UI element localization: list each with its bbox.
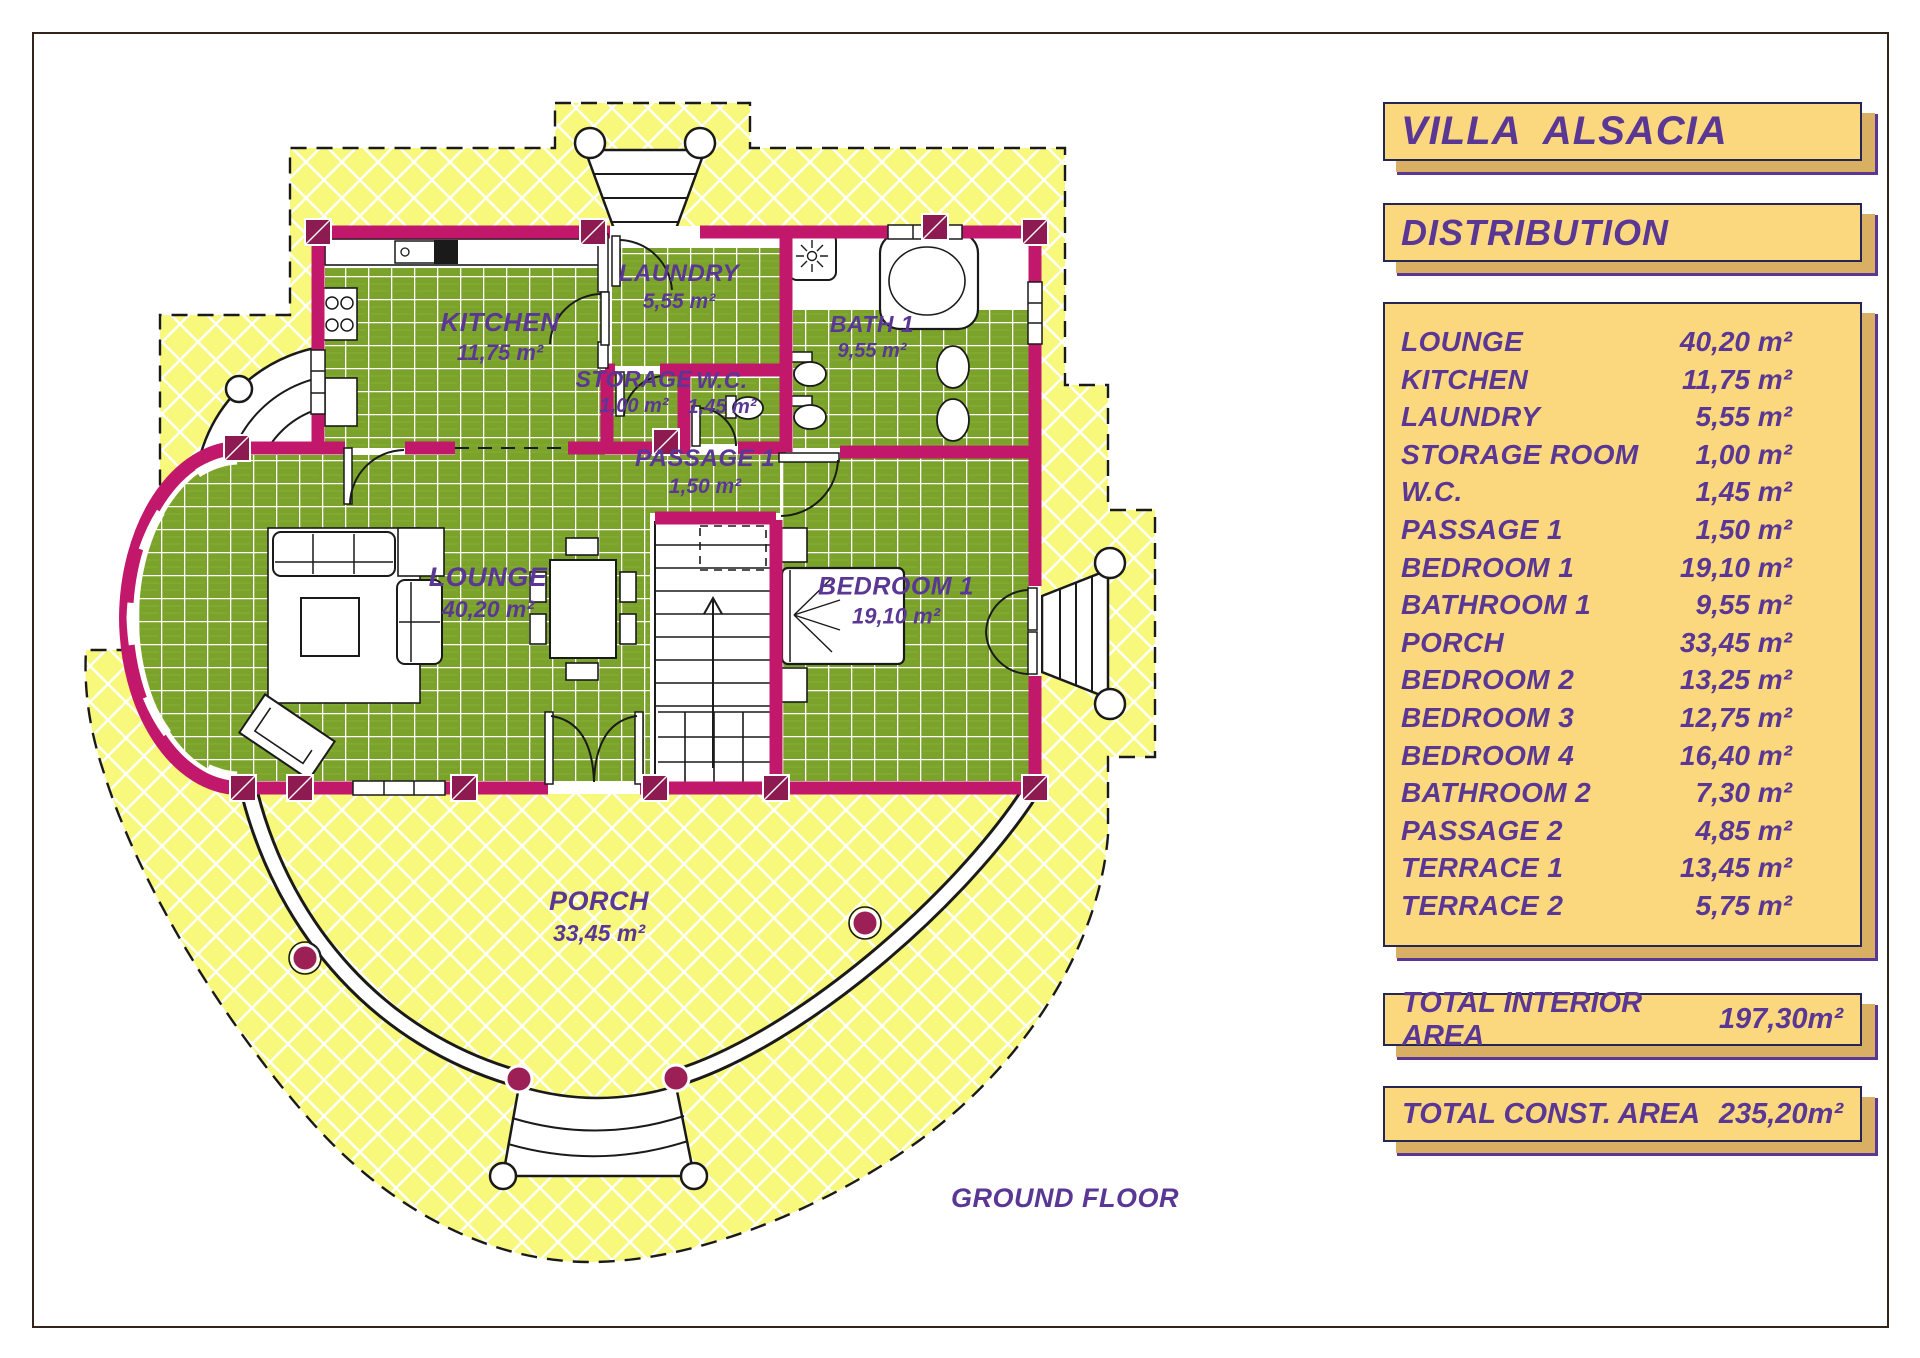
toilet xyxy=(794,405,826,429)
room-area: 5,55 m² xyxy=(1696,398,1793,436)
step-post xyxy=(226,376,252,402)
room-area: 5,75 m² xyxy=(1696,887,1793,925)
plan-room-label: KITCHEN11,75 m² xyxy=(440,306,559,366)
room-name: BEDROOM 2 xyxy=(1401,661,1574,699)
plan-room-name: LOUNGE xyxy=(429,561,548,595)
porch-column xyxy=(663,1065,689,1091)
distribution-row: TERRACE 113,45 m² xyxy=(1385,849,1860,887)
plan-room-area: 5,55 m² xyxy=(619,289,739,315)
chair xyxy=(566,538,598,555)
total-interior-value: 197,30m² xyxy=(1719,1003,1843,1036)
room-name: BATHROOM 2 xyxy=(1401,774,1591,812)
distribution-row: LOUNGE40,20 m² xyxy=(1385,323,1860,361)
step-post xyxy=(1095,548,1125,578)
chair xyxy=(566,663,598,680)
room-area: 19,10 m² xyxy=(1680,549,1792,587)
room-area: 1,50 m² xyxy=(1696,511,1793,549)
step-post xyxy=(575,128,605,158)
plan-room-label: BEDROOM 119,10 m² xyxy=(818,572,974,631)
plan-room-label: PASSAGE 11,50 m² xyxy=(635,444,775,500)
distribution-header-panel: DISTRIBUTION xyxy=(1383,203,1862,262)
sofa-3seat xyxy=(273,532,395,576)
total-interior-panel: TOTAL INTERIOR AREA 197,30m² xyxy=(1383,993,1862,1046)
distribution-row: BEDROOM 119,10 m² xyxy=(1385,549,1860,587)
plan-room-label: STORAGE1,00 m² xyxy=(576,365,693,419)
coffee-table xyxy=(301,598,359,656)
plan-room-label: W.C.1,45 m² xyxy=(688,366,757,420)
room-area: 12,75 m² xyxy=(1680,699,1792,737)
step-post xyxy=(685,128,715,158)
room-area: 13,45 m² xyxy=(1680,849,1792,887)
room-area: 1,45 m² xyxy=(1696,473,1793,511)
total-const-label: TOTAL CONST. AREA xyxy=(1402,1098,1700,1131)
room-name: PASSAGE 2 xyxy=(1401,812,1563,850)
distribution-row: PASSAGE 24,85 m² xyxy=(1385,812,1860,850)
plan-room-label: BATH 19,55 m² xyxy=(830,310,914,364)
bidet xyxy=(794,362,826,386)
room-area: 11,75 m² xyxy=(1682,361,1792,399)
plan-room-area: 1,50 m² xyxy=(635,474,775,500)
distribution-row: STORAGE ROOM1,00 m² xyxy=(1385,436,1860,474)
nightstand xyxy=(779,668,807,702)
plan-room-name: KITCHEN xyxy=(440,306,559,339)
distribution-row: LAUNDRY5,55 m² xyxy=(1385,398,1860,436)
distribution-row: PORCH33,45 m² xyxy=(1385,624,1860,662)
room-name: BEDROOM 1 xyxy=(1401,549,1574,587)
plan-room-name: BEDROOM 1 xyxy=(818,572,974,603)
distribution-header: DISTRIBUTION xyxy=(1401,212,1669,254)
room-name: TERRACE 1 xyxy=(1401,849,1563,887)
villa-title: VILLA ALSACIA xyxy=(1401,109,1728,154)
step-post xyxy=(681,1163,707,1189)
room-name: BEDROOM 4 xyxy=(1401,737,1574,775)
plan-room-name: LAUNDRY xyxy=(619,259,739,289)
distribution-row: KITCHEN11,75 m² xyxy=(1385,361,1860,399)
room-area: 7,30 m² xyxy=(1696,774,1793,812)
distribution-row: BEDROOM 312,75 m² xyxy=(1385,699,1860,737)
room-name: PASSAGE 1 xyxy=(1401,511,1563,549)
dining-table xyxy=(550,560,616,658)
chair xyxy=(620,614,636,644)
distribution-row: BATHROOM 27,30 m² xyxy=(1385,774,1860,812)
plan-room-name: PASSAGE 1 xyxy=(635,444,775,474)
room-name: LAUNDRY xyxy=(1401,398,1540,436)
plan-room-name: BATH 1 xyxy=(830,310,914,339)
room-area: 1,00 m² xyxy=(1696,436,1793,474)
bath-sink xyxy=(937,346,969,388)
plan-room-label: LAUNDRY5,55 m² xyxy=(619,259,739,315)
plan-room-label: LOUNGE40,20 m² xyxy=(429,561,548,624)
fridge xyxy=(325,378,357,426)
room-area: 4,85 m² xyxy=(1696,812,1793,850)
plan-room-area: 19,10 m² xyxy=(818,603,974,631)
plan-room-area: 1,00 m² xyxy=(576,394,693,419)
room-name: KITCHEN xyxy=(1401,361,1528,399)
plan-room-area: 9,55 m² xyxy=(830,339,914,364)
room-name: STORAGE ROOM xyxy=(1401,436,1639,474)
step-post xyxy=(1095,689,1125,719)
total-interior-label: TOTAL INTERIOR AREA xyxy=(1402,987,1719,1053)
nightstand xyxy=(779,528,807,562)
room-area: 9,55 m² xyxy=(1696,586,1793,624)
floor-plan: KITCHEN11,75 m²LAUNDRY5,55 m²BATH 19,55 … xyxy=(0,0,1250,1330)
bath-sink xyxy=(937,399,969,441)
room-area: 40,20 m² xyxy=(1680,323,1792,361)
room-name: BATHROOM 1 xyxy=(1401,586,1591,624)
distribution-row: BEDROOM 416,40 m² xyxy=(1385,737,1860,775)
plan-room-area: 11,75 m² xyxy=(440,339,559,367)
plan-room-area: 33,45 m² xyxy=(549,919,649,948)
distribution-row: TERRACE 25,75 m² xyxy=(1385,887,1860,925)
total-const-panel: TOTAL CONST. AREA 235,20m² xyxy=(1383,1086,1862,1142)
cooktop-appliance xyxy=(435,241,457,263)
distribution-row: W.C.1,45 m² xyxy=(1385,473,1860,511)
floor-caption: GROUND FLOOR xyxy=(940,1183,1190,1214)
kitchen-counter xyxy=(325,239,601,265)
porch-column xyxy=(506,1066,532,1092)
distribution-row: BATHROOM 19,55 m² xyxy=(1385,586,1860,624)
plan-room-name: STORAGE xyxy=(576,365,693,394)
room-area: 33,45 m² xyxy=(1680,624,1792,662)
distribution-row: PASSAGE 11,50 m² xyxy=(1385,511,1860,549)
staircase xyxy=(655,522,771,788)
room-name: TERRACE 2 xyxy=(1401,887,1563,925)
chair xyxy=(620,572,636,602)
room-area: 16,40 m² xyxy=(1680,737,1792,775)
plan-room-area: 1,45 m² xyxy=(688,395,757,420)
room-name: W.C. xyxy=(1401,473,1463,511)
room-area: 13,25 m² xyxy=(1680,661,1792,699)
distribution-row: BEDROOM 213,25 m² xyxy=(1385,661,1860,699)
plan-sheet: KITCHEN11,75 m²LAUNDRY5,55 m²BATH 19,55 … xyxy=(0,0,1920,1358)
plan-room-area: 40,20 m² xyxy=(429,595,548,624)
floor-plan-drawing xyxy=(0,0,1250,1330)
plan-room-label: PORCH33,45 m² xyxy=(549,885,649,948)
plan-room-name: W.C. xyxy=(688,366,757,395)
room-name: BEDROOM 3 xyxy=(1401,699,1574,737)
plan-room-name: PORCH xyxy=(549,885,649,919)
room-name: PORCH xyxy=(1401,624,1504,662)
stove xyxy=(321,288,357,340)
step-post xyxy=(490,1163,516,1189)
room-name: LOUNGE xyxy=(1401,323,1523,361)
total-const-value: 235,20m² xyxy=(1719,1098,1843,1131)
distribution-table-panel: LOUNGE40,20 m²KITCHEN11,75 m²LAUNDRY5,55… xyxy=(1383,302,1862,947)
villa-title-panel: VILLA ALSACIA xyxy=(1383,102,1862,161)
